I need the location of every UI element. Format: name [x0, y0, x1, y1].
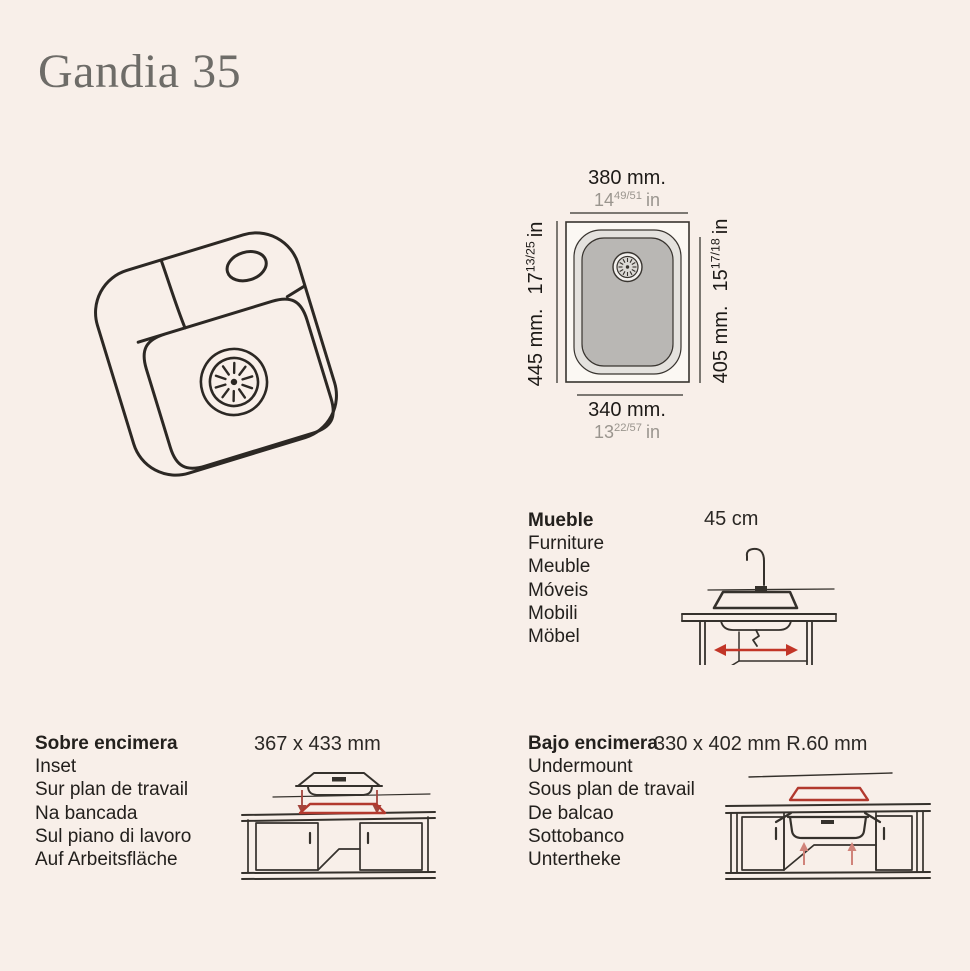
undermount-label-it: Sottobanco	[528, 825, 695, 848]
faucet-icon	[747, 549, 764, 585]
furniture-dimension: 45 cm	[704, 508, 758, 531]
dim-line-bottom	[577, 394, 683, 396]
cutout-outline	[790, 788, 868, 800]
dim-line-left	[556, 221, 558, 383]
undermount-label-pt: De balcao	[528, 802, 695, 825]
spec-sheet: Gandia 35	[0, 0, 970, 971]
countertop	[726, 804, 930, 813]
sink-bowl-outline	[138, 293, 339, 474]
dim-left-label: 445 mm.1713/25in	[525, 204, 551, 404]
drain-icon	[613, 253, 642, 282]
dim-bottom-mm: 340 mm.	[537, 399, 717, 422]
page-title: Gandia 35	[38, 44, 241, 99]
bottom-plinth	[726, 872, 930, 879]
sink-top-view-diagram	[565, 221, 690, 383]
drain-slot-icon	[332, 777, 346, 782]
sink-3d-sketch	[75, 216, 357, 492]
undermount-label-fr: Sous plan de travail	[528, 778, 695, 801]
back-counter-line	[749, 773, 892, 777]
interior-perspective-lines	[784, 845, 876, 870]
undermount-label-de: Untertheke	[528, 848, 695, 871]
cutout-outline	[300, 804, 385, 813]
inset-label-fr: Sur plan de travail	[35, 778, 191, 801]
sink-under-counter	[776, 813, 880, 838]
furniture-label-fr: Meuble	[528, 555, 604, 578]
back-wall-line	[708, 589, 834, 590]
inset-label-de: Auf Arbeitsfläche	[35, 848, 191, 871]
dim-right-label: 405 mm.1517/18in	[710, 201, 736, 401]
furniture-label-pt: Móveis	[528, 579, 604, 602]
furniture-label-es: Mueble	[528, 509, 604, 532]
bottom-plinth	[242, 872, 435, 879]
dim-line-top	[570, 212, 688, 214]
drain-slot-icon	[821, 820, 834, 824]
rim-crease-line-right	[286, 286, 306, 296]
dim-line-right	[699, 237, 701, 383]
drain-icon	[193, 341, 275, 423]
cabinet-width-diagram	[676, 533, 844, 665]
tap-hole-icon	[223, 247, 269, 285]
inset-label-en: Inset	[35, 755, 191, 778]
under-sink-bowl	[721, 621, 791, 646]
drain-pipe-icon	[753, 630, 759, 646]
inset-dimension: 367 x 433 mm	[254, 733, 381, 756]
countertop	[682, 614, 836, 621]
furniture-labels: Mueble Furniture Meuble Móveis Mobili Mö…	[528, 509, 604, 648]
interior-perspective-lines	[318, 849, 360, 870]
inset-label-it: Sul piano di lavoro	[35, 825, 191, 848]
dim-bottom-in: 1322/57in	[537, 422, 717, 443]
inset-label-es: Sobre encimera	[35, 732, 191, 755]
rim-crease-line	[161, 260, 185, 329]
furniture-label-en: Furniture	[528, 532, 604, 555]
inset-installation-diagram	[238, 760, 440, 882]
dim-top-mm: 380 mm.	[537, 167, 717, 190]
sink-above-counter	[296, 773, 382, 795]
furniture-label-de: Möbel	[528, 625, 604, 648]
undermount-installation-diagram	[724, 760, 936, 882]
undermount-label-en: Undermount	[528, 755, 695, 778]
cabinet-front	[248, 817, 428, 872]
furniture-label-it: Mobili	[528, 602, 604, 625]
inset-label-pt: Na bancada	[35, 802, 191, 825]
dim-top-in: 1449/51in	[537, 190, 717, 211]
undermount-dimension: 330 x 402 mm R.60 mm	[654, 733, 867, 756]
inset-labels: Sobre encimera Inset Sur plan de travail…	[35, 732, 191, 871]
